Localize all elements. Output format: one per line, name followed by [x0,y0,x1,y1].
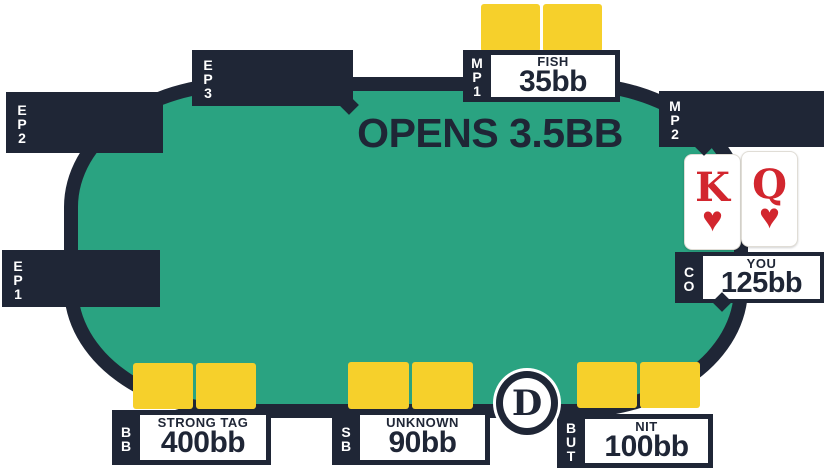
player-stack: 35bb [519,68,587,97]
heart-suit-icon: ♥ [759,203,780,231]
player-stack: 90bb [388,429,456,458]
seat-mp1: MP1 FISH 35bb [463,50,620,102]
seat-button: BUT NIT 100bb [557,414,713,468]
card-back-icon [133,363,193,409]
card-back-icon [640,362,700,408]
card-back-icon [577,362,637,408]
player-stack: 400bb [161,429,245,458]
card-back-icon [543,4,602,52]
hero-card-king-hearts: K ♥ [684,154,741,250]
seat-position-label: MP1 [463,50,491,102]
bb-card-backs [133,363,256,409]
player-info-panel: STRONG TAG 400bb [140,415,266,460]
hero-card-queen-hearts: Q ♥ [741,151,798,247]
seat-co-hero: CO YOU 125bb [675,252,824,303]
seat-ep1: EP1 [2,250,160,307]
player-info-panel: NIT 100bb [585,419,708,463]
seat-position-label: BB [112,410,140,465]
seat-position-label: MP2 [659,91,686,147]
sb-card-backs [348,362,473,409]
player-stack: 125bb [721,270,802,298]
card-back-icon [348,362,409,409]
player-info-panel: UNKNOWN 90bb [360,415,485,460]
seat-position-label: CO [675,252,703,303]
poker-table-diagram: OPENS 3.5BB EP1 EP2 EP3 MP2 MP1 FISH 35b… [0,0,824,475]
seat-position-label: EP1 [2,250,29,307]
seat-bb: BB STRONG TAG 400bb [112,410,271,465]
seat-mp2: MP2 [659,91,824,147]
mp1-card-backs [481,4,602,52]
heart-suit-icon: ♥ [702,206,723,234]
seat-ep2: EP2 [6,92,163,153]
card-back-icon [412,362,473,409]
player-info-panel: FISH 35bb [491,55,615,97]
card-back-icon [196,363,256,409]
seat-position-label: EP2 [6,92,33,153]
seat-position-label: BUT [557,414,585,468]
dealer-button: D [496,371,558,435]
but-card-backs [577,362,700,408]
seat-sb: SB UNKNOWN 90bb [332,410,490,465]
card-back-icon [481,4,540,52]
seat-position-label: SB [332,410,360,465]
seat-position-label: EP3 [192,50,219,106]
seat-ep3: EP3 [192,50,353,106]
player-stack: 100bb [604,433,688,462]
